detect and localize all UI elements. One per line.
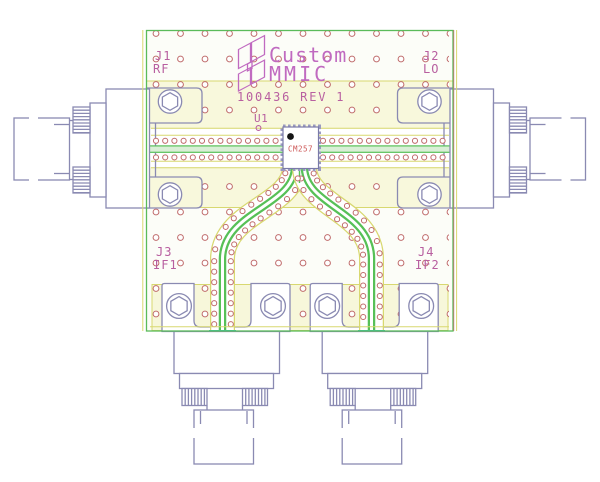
label-j3-signal: IF1 xyxy=(153,258,178,272)
label-j2-signal: LO xyxy=(423,62,439,76)
pin1-dot xyxy=(287,133,294,140)
label-u1-refdes: U1 xyxy=(254,112,268,125)
label-j4-refdes: J4 xyxy=(418,245,434,259)
label-j1-refdes: J1 xyxy=(155,49,171,63)
drawing-svg: CM257 J1 RF J2 LO J3 IF1 J4 IF2 U1 10043… xyxy=(0,0,600,482)
label-j1-signal: RF xyxy=(153,62,169,76)
label-j3-refdes: J3 xyxy=(156,245,172,259)
title-block-text: 100436 REV 1 xyxy=(237,90,345,104)
label-j4-signal: IF2 xyxy=(415,258,440,272)
label-j2-refdes: J2 xyxy=(423,49,439,63)
chip-u1: CM257 xyxy=(283,127,319,169)
chip-part-label: CM257 xyxy=(288,145,313,154)
logo-text-line2: MMIC xyxy=(269,62,329,86)
pcb-assembly-drawing: CM257 J1 RF J2 LO J3 IF1 J4 IF2 U1 10043… xyxy=(0,0,600,482)
